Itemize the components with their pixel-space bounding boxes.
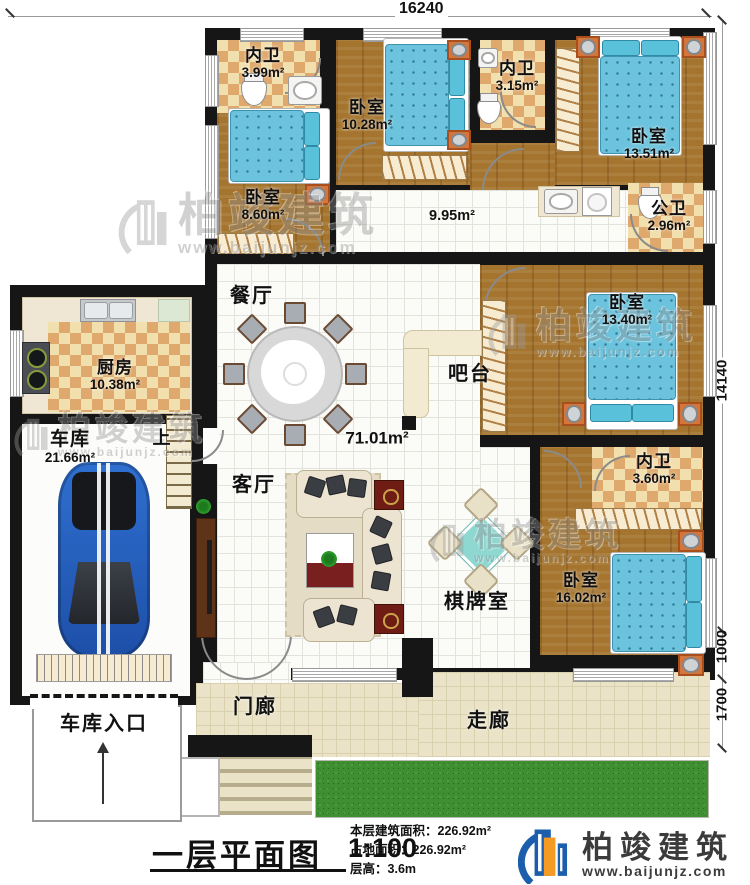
nightstand [562, 402, 586, 426]
info-line: 占地面积：226.92m² [350, 841, 491, 860]
window [205, 55, 219, 107]
nightstand [576, 36, 600, 58]
side-table [374, 604, 404, 634]
dimension-line-top [8, 16, 712, 17]
label-bed-left: 卧室8.60m² [242, 188, 285, 222]
label-living: 客厅 [232, 474, 276, 496]
brand-logo: 柏竣建筑 www.baijunjz.com [518, 826, 734, 884]
wall-porch-stub [188, 735, 312, 757]
label-living-area: 71.01m² [345, 428, 408, 447]
dimension-right-bottom: 1700 [714, 682, 731, 728]
mattress [612, 554, 686, 652]
kitchen-sink-basin [109, 302, 133, 319]
planter-box [178, 757, 220, 817]
pillow [602, 40, 640, 56]
mattress [230, 110, 304, 182]
window [703, 305, 717, 397]
nightstand [678, 530, 704, 552]
dining-table-center [283, 362, 307, 386]
chair [284, 424, 306, 446]
label-bath-inner-right: 内卫3.60m² [633, 452, 676, 486]
sink-icon [288, 76, 322, 105]
mattress [385, 44, 449, 146]
label-garage-entry: 车库入口 [60, 713, 148, 735]
window [240, 28, 304, 42]
nightstand [447, 40, 471, 60]
window [573, 668, 674, 682]
label-bed-bottom-right: 卧室16.02m² [556, 571, 606, 605]
tv-cabinet [196, 518, 216, 638]
brand-site: www.baijunjz.com [582, 863, 734, 879]
label-bed-top-mid: 卧室10.28m² [342, 98, 392, 132]
pillow [632, 404, 674, 422]
plan-info: 本层建筑面积：226.92m² 占地面积：226.92m² 层高：3.6m [350, 822, 491, 878]
wall-porch-veranda-post [402, 638, 433, 697]
nightstand [678, 402, 702, 426]
garage-door-dashed [30, 694, 178, 709]
label-bed-top-right: 卧室13.51m² [624, 127, 674, 161]
chair [223, 363, 245, 385]
info-line: 层高：3.6m [350, 860, 491, 879]
porch-steps [218, 757, 312, 815]
plant-icon [196, 499, 211, 514]
stove-burner [27, 348, 47, 368]
label-corridor-area: 9.95m² [429, 208, 475, 224]
garage-grille [36, 654, 172, 682]
washing-machine-icon [582, 187, 612, 216]
car-hood [68, 562, 140, 624]
chair [345, 363, 367, 385]
floor-plan-page: 16240 14140 1000 1700 [0, 0, 750, 885]
wardrobe [575, 508, 702, 530]
label-kitchen: 厨房10.38m² [90, 358, 140, 392]
dimension-top-value: 16240 [395, 0, 448, 18]
wardrobe [382, 155, 467, 180]
stove-burner [27, 370, 47, 390]
label-garage: 车库21.66m² [45, 429, 95, 465]
cutting-board [158, 299, 190, 322]
lawn [315, 760, 709, 818]
tv-icon [207, 540, 212, 614]
pillow [686, 602, 702, 648]
car-stripe [106, 463, 110, 657]
label-bath-top-mid: 内卫3.15m² [496, 59, 539, 93]
watermark-logo-icon [118, 195, 170, 255]
sofa-cushion [347, 478, 367, 498]
bar-counter [403, 348, 429, 418]
pillow [686, 556, 702, 602]
table-plant [321, 551, 337, 567]
direction-arrow-shaft [102, 752, 104, 804]
direction-arrow-head [97, 742, 109, 753]
wardrobe [556, 48, 580, 152]
sofa-cushion [371, 571, 392, 592]
chair [284, 302, 306, 324]
brand-name: 柏竣建筑 [582, 832, 734, 863]
window [205, 125, 219, 239]
title-underline [150, 869, 346, 872]
label-stairs-up: 上 [153, 428, 172, 448]
sofa-cushion [325, 474, 346, 495]
label-bath-public: 公卫2.96m² [648, 199, 691, 233]
label-porch: 门廊 [233, 696, 277, 718]
window [703, 190, 717, 244]
nightstand [447, 130, 471, 150]
label-bed-right: 卧室13.40m² [602, 293, 652, 327]
pillow [590, 404, 632, 422]
pillow [304, 146, 320, 180]
nightstand [678, 654, 704, 676]
label-bar: 吧台 [448, 363, 492, 385]
label-dining: 餐厅 [230, 285, 274, 307]
window [292, 668, 397, 682]
nightstand [682, 36, 706, 58]
wardrobe [218, 233, 294, 254]
sink-icon [544, 189, 578, 214]
pillow [641, 40, 679, 56]
label-game-room: 棋牌室 [444, 591, 510, 613]
nightstand [305, 184, 330, 205]
info-line: 本层建筑面积：226.92m² [350, 822, 491, 841]
label-veranda: 走廊 [467, 710, 511, 732]
kitchen-sink-basin [84, 302, 108, 319]
pillow [304, 112, 320, 146]
car-cockpit [72, 472, 136, 530]
brand-logo-icon [518, 826, 572, 884]
label-bath-top-left: 内卫3.99m² [242, 46, 285, 80]
veranda-paving [418, 672, 710, 757]
car-stripe [97, 463, 101, 657]
side-table [374, 480, 404, 510]
